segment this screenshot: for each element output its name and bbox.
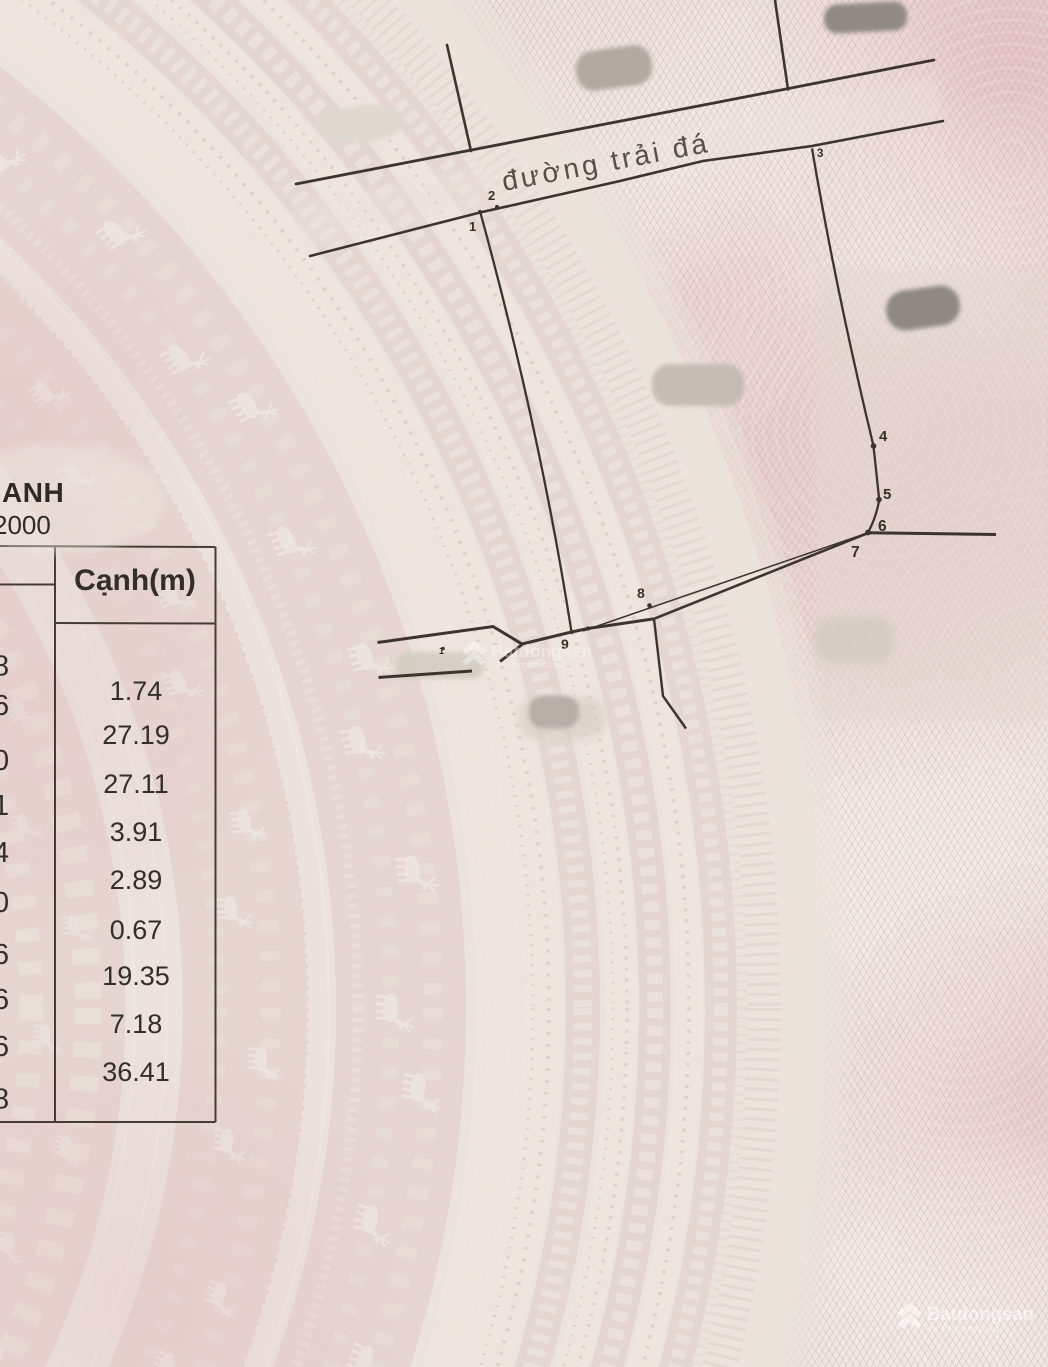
svg-text:Cạnh(m): Cạnh(m): [74, 564, 196, 597]
svg-text:27.11: 27.11: [103, 769, 169, 799]
svg-text:6: 6: [878, 518, 887, 535]
svg-text:2.89: 2.89: [110, 865, 163, 895]
svg-text:4: 4: [0, 837, 9, 869]
svg-text:Batdongsan: Batdongsan: [491, 641, 592, 661]
svg-text:3.91: 3.91: [110, 817, 163, 847]
svg-text:ANH: ANH: [2, 477, 64, 508]
svg-text:by PropertyGuru: by PropertyGuru: [929, 1324, 999, 1335]
svg-text:by PropertyGuru: by PropertyGuru: [497, 660, 563, 670]
svg-text:36.41: 36.41: [102, 1057, 170, 1087]
svg-text:8: 8: [0, 651, 9, 683]
svg-text:2000: 2000: [0, 510, 51, 540]
svg-text:1: 1: [0, 790, 9, 822]
svg-text:1.74: 1.74: [110, 676, 163, 706]
svg-text:5: 5: [883, 486, 891, 503]
svg-text:6: 6: [0, 939, 9, 971]
svg-text:6: 6: [0, 1031, 9, 1063]
svg-text:6: 6: [0, 984, 9, 1016]
svg-text:7: 7: [851, 544, 860, 561]
svg-text:8: 8: [0, 1084, 9, 1116]
svg-text:0: 0: [0, 745, 9, 777]
svg-text:3: 3: [817, 148, 823, 160]
svg-text:1: 1: [439, 646, 444, 656]
svg-text:4: 4: [879, 428, 888, 445]
svg-text:6: 6: [0, 690, 9, 722]
svg-text:0: 0: [0, 887, 9, 919]
svg-text:1: 1: [469, 219, 476, 234]
svg-text:2: 2: [488, 188, 495, 203]
svg-text:0.67: 0.67: [110, 915, 163, 945]
svg-text:7.18: 7.18: [110, 1009, 163, 1039]
svg-text:27.19: 27.19: [102, 720, 170, 750]
svg-text:19.35: 19.35: [102, 961, 170, 991]
svg-text:Batdongsan: Batdongsan: [927, 1303, 1034, 1324]
svg-text:8: 8: [637, 585, 645, 601]
